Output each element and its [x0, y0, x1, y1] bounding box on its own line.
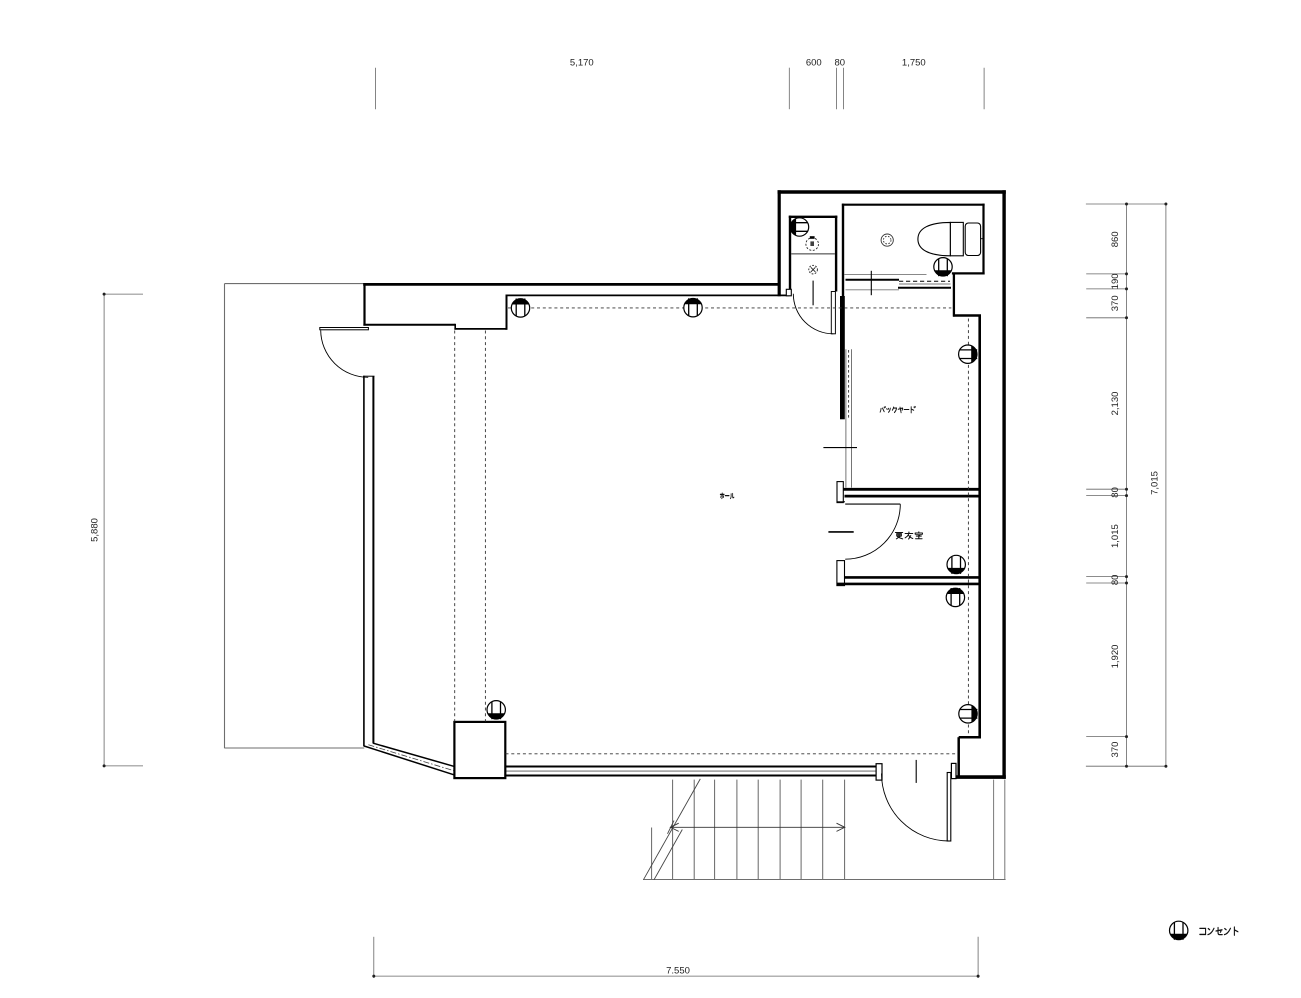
svg-text:370: 370	[1110, 742, 1121, 758]
svg-text:190: 190	[1110, 273, 1121, 289]
svg-text:80: 80	[835, 58, 846, 69]
svg-text:370: 370	[1110, 295, 1121, 311]
svg-text:600: 600	[806, 58, 822, 69]
svg-text:860: 860	[1110, 231, 1121, 247]
svg-text:7,015: 7,015	[1150, 471, 1161, 495]
svg-text:2,130: 2,130	[1110, 392, 1121, 416]
svg-text:1,920: 1,920	[1110, 645, 1121, 669]
svg-text:1,015: 1,015	[1110, 524, 1121, 548]
svg-text:80: 80	[1110, 487, 1121, 498]
svg-text:7.550: 7.550	[666, 965, 690, 976]
svg-text:1,750: 1,750	[902, 58, 926, 69]
svg-text:5,880: 5,880	[90, 518, 101, 542]
svg-text:80: 80	[1110, 575, 1121, 586]
svg-text:5,170: 5,170	[570, 58, 594, 69]
